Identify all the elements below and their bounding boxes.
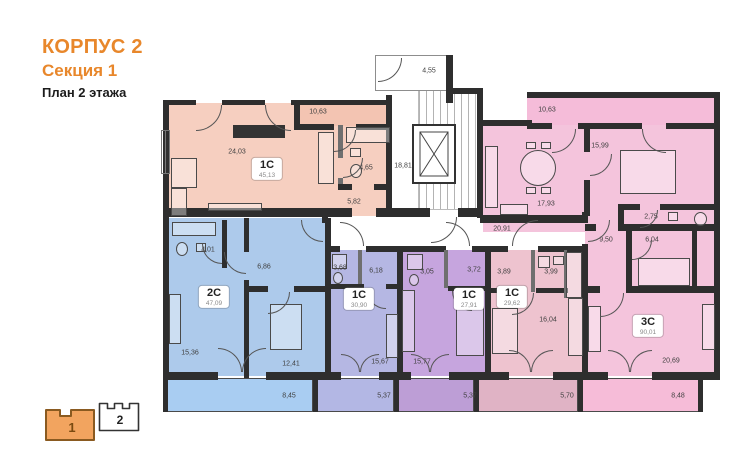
dim-label: 6,18 (369, 268, 383, 275)
dim-label: 12,41 (282, 361, 300, 368)
dim-label: 5,70 (560, 393, 574, 400)
wall (376, 208, 430, 217)
wall (652, 372, 718, 380)
apartment-type: 1С (504, 288, 520, 300)
furniture-wardrobe (702, 304, 715, 350)
furniture-kitchen (485, 146, 498, 208)
section-selector-1[interactable]: 1 (44, 408, 96, 442)
apartment-badge-lavender[interactable]: 1С 30,90 (344, 288, 374, 310)
wall (374, 184, 392, 190)
furniture-toilet (176, 242, 188, 256)
section-selector-2[interactable]: 2 (98, 402, 140, 432)
door-arc (340, 222, 364, 246)
apartment-badge-rose[interactable]: 1С 29,62 (497, 286, 527, 308)
wall (666, 123, 714, 129)
furniture-toilet (694, 212, 707, 226)
apartment-type: 1С (461, 290, 477, 302)
wall (386, 284, 400, 289)
door-arc (446, 222, 470, 246)
wall (244, 218, 249, 252)
dim-label: 3,99 (544, 269, 558, 276)
wall (266, 372, 341, 380)
wall (325, 218, 331, 378)
dim-label: 15,36 (181, 350, 199, 357)
furniture-kitchen (568, 298, 583, 356)
wall (626, 286, 718, 293)
furniture-bathtub (566, 252, 582, 298)
wall (366, 246, 446, 252)
section-2-shape: 2 (98, 402, 140, 432)
dim-label: 6,86 (257, 264, 271, 271)
apartment-type: 1С (259, 160, 275, 172)
wall (446, 55, 453, 103)
furniture-wardrobe (171, 158, 197, 188)
apartment-area: 29,62 (504, 299, 520, 307)
wall (527, 123, 552, 129)
wall (477, 92, 483, 218)
furniture-sink (668, 212, 678, 221)
furniture-bathtub (638, 258, 690, 286)
furniture-toilet (409, 274, 419, 286)
furniture-chair (541, 187, 551, 194)
apartment-area: 45,13 (259, 171, 275, 179)
dim-label: 8,45 (282, 393, 296, 400)
wall (358, 250, 362, 286)
dim-label: 16,04 (539, 317, 557, 324)
wall (480, 120, 532, 126)
dim-label: 18,81 (394, 163, 412, 170)
dim-label: 4,55 (422, 68, 436, 75)
elevator-x-icon (414, 126, 454, 182)
wall (222, 100, 265, 105)
furniture-sink (553, 256, 564, 265)
apartment-area: 27,91 (461, 301, 477, 309)
dim-label: 8,48 (671, 393, 685, 400)
dim-label: 3,05 (420, 269, 434, 276)
apartment-type: 2С (206, 288, 222, 300)
apartment-area: 90,01 (640, 328, 656, 336)
furniture-sofa (169, 294, 181, 344)
furniture-toilet (333, 272, 343, 284)
section-2-label: 2 (117, 413, 124, 427)
furniture-wardrobe (171, 188, 187, 216)
furniture-dresser (208, 203, 262, 211)
dim-label: 15,99 (591, 143, 609, 150)
apartment-area: 30,90 (351, 301, 367, 309)
wall (291, 100, 392, 105)
dim-label: 3,89 (497, 269, 511, 276)
dim-label: 10,63 (309, 109, 327, 116)
wall (660, 204, 718, 210)
furniture-bathtub (172, 222, 216, 236)
dim-label: 3,68 (333, 265, 347, 272)
dim-label: 3,72 (467, 267, 481, 274)
furniture-kitchen (402, 290, 415, 352)
section-1-label: 1 (68, 420, 75, 435)
wall (527, 92, 720, 98)
wall (163, 378, 168, 412)
apartment-badge-pink3[interactable]: 3С 90,01 (633, 315, 663, 337)
dim-label: 10,63 (538, 107, 556, 114)
window (161, 130, 170, 174)
wall (386, 95, 392, 216)
wall (294, 286, 331, 292)
wall (313, 378, 318, 412)
wall (444, 250, 448, 288)
wall (620, 204, 640, 210)
wall (244, 286, 268, 292)
apartment-type: 1С (351, 290, 367, 302)
furniture-sink (350, 148, 361, 157)
wall (531, 250, 535, 292)
wall (294, 124, 334, 130)
floor-plan-page: КОРПУС 2 Секция 1 План 2 этажа (0, 0, 740, 472)
apartment-type: 3С (640, 317, 656, 329)
furniture-dining-table (520, 150, 556, 186)
dim-label: 24,03 (228, 149, 246, 156)
furniture-kitchen (318, 132, 334, 184)
dim-label: 5,37 (463, 393, 477, 400)
wall (584, 125, 590, 152)
furniture-chair (526, 187, 536, 194)
furniture-bed (620, 150, 676, 194)
wall (485, 250, 491, 378)
furniture-chair (541, 142, 551, 149)
apartment-badge-blue[interactable]: 2С 47,09 (199, 286, 229, 308)
furniture-washer (538, 256, 550, 268)
wall (338, 184, 352, 190)
dim-label: 5,37 (377, 393, 391, 400)
section-1-shape: 1 (44, 408, 96, 442)
dim-label: 20,91 (493, 226, 511, 233)
dim-label: 5,82 (347, 199, 361, 206)
dim-label: 17,93 (537, 201, 555, 208)
wall (394, 378, 399, 412)
furniture-bed (456, 306, 484, 356)
furniture-sofa (386, 314, 398, 358)
wall (585, 286, 600, 293)
apartment-badge-salmon[interactable]: 1С 45,13 (252, 158, 282, 180)
wall (584, 180, 590, 216)
furniture-chair (526, 142, 536, 149)
wall (692, 231, 697, 290)
elevator (412, 124, 456, 184)
wall (163, 372, 218, 380)
wall (698, 378, 703, 412)
dim-label: 20,69 (662, 358, 680, 365)
apartment-area: 47,09 (206, 299, 222, 307)
wall (578, 378, 583, 412)
furniture-stove (500, 204, 528, 215)
wall (449, 372, 509, 380)
apartment-badge-purple[interactable]: 1С 27,91 (454, 288, 484, 310)
